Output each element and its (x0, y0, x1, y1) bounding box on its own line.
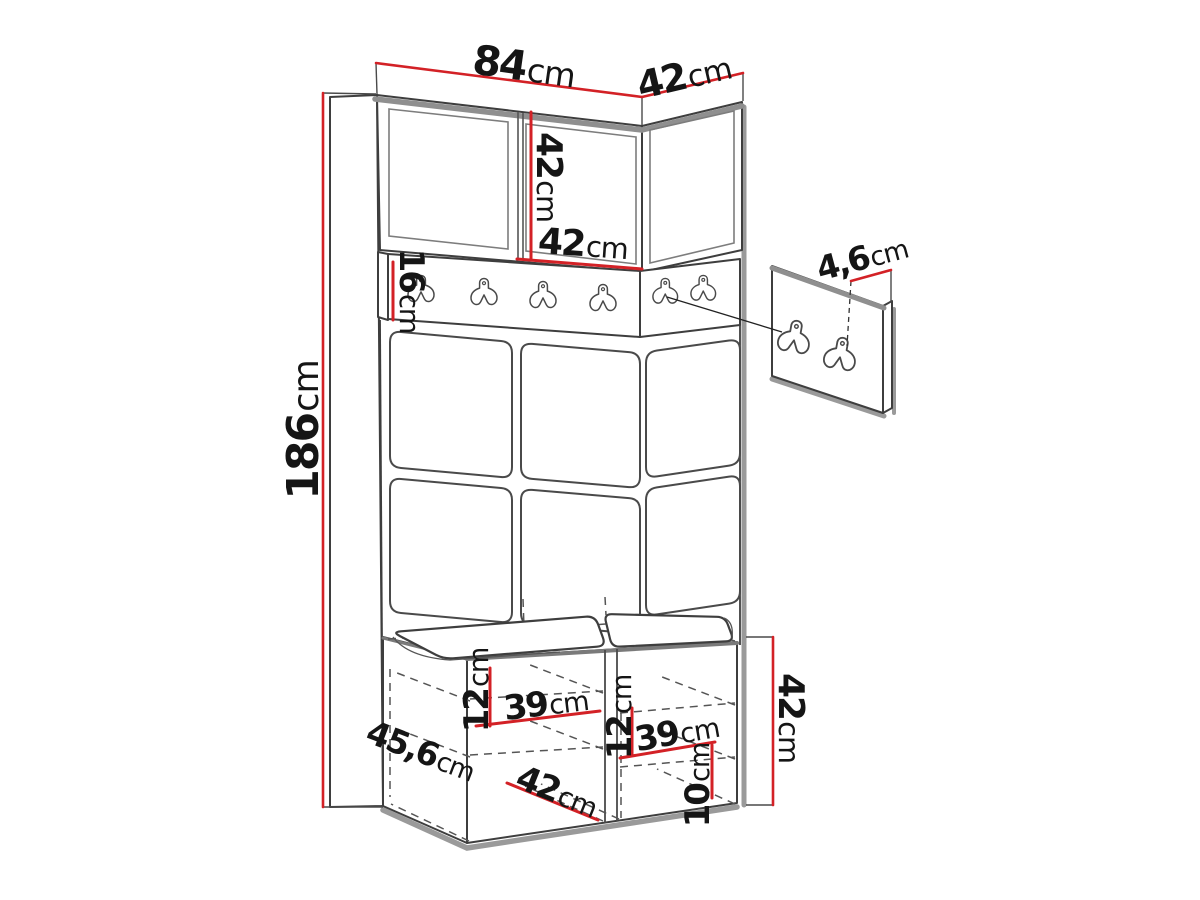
dim-unit: cm (525, 51, 578, 95)
dim-value: 39 (501, 684, 549, 729)
dim-value: 42 (528, 132, 569, 178)
dim-bench-right-shelf-drop-label: 12cm (603, 675, 637, 760)
dim-unit: cm (547, 686, 590, 722)
dim-upper-cabinet-height-label: 42cm (530, 132, 566, 222)
left-side-panel (330, 95, 383, 807)
padded-panel (646, 340, 740, 476)
dim-value: 42 (770, 673, 811, 719)
padded-panel (390, 479, 512, 622)
dim-hook-rail-height-label: 16cm (394, 249, 428, 334)
padded-back-panels (390, 332, 740, 633)
dim-bench-left-shelf-drop-label: 12cm (460, 648, 494, 733)
dim-value: 16 (391, 249, 431, 292)
dim-value: 84 (470, 36, 529, 91)
dim-value: 42 (537, 221, 586, 265)
dim-unit: cm (286, 360, 327, 412)
dim-value: 39 (632, 713, 682, 760)
diagram-line-art (0, 0, 1200, 900)
padded-panel (521, 344, 640, 487)
dim-total-height-label: 186cm (282, 360, 326, 499)
dim-upper-door-width-label: 42cm (537, 224, 629, 266)
padded-panel (390, 332, 512, 477)
dim-value: 12 (457, 689, 497, 732)
dim-unit: cm (393, 294, 424, 333)
padded-panel (646, 476, 740, 614)
dim-unit: cm (585, 229, 629, 266)
dim-bench-bottom-clearance-label: 10cm (681, 743, 715, 828)
dim-unit: cm (607, 675, 638, 714)
dim-bench-height-label: 42cm (772, 673, 808, 763)
dim-value: 10 (678, 784, 718, 827)
furniture-dimension-diagram: 186cm 84cm 42cm 42cm 42cm 16cm 4,6cm 45,… (0, 0, 1200, 900)
padded-panel (521, 490, 640, 633)
dim-unit: cm (464, 648, 495, 687)
dim-unit: cm (772, 721, 806, 763)
dim-value: 186 (278, 414, 329, 500)
dim-unit: cm (685, 743, 716, 782)
bench-cushion (606, 614, 732, 646)
dim-unit: cm (530, 180, 564, 222)
